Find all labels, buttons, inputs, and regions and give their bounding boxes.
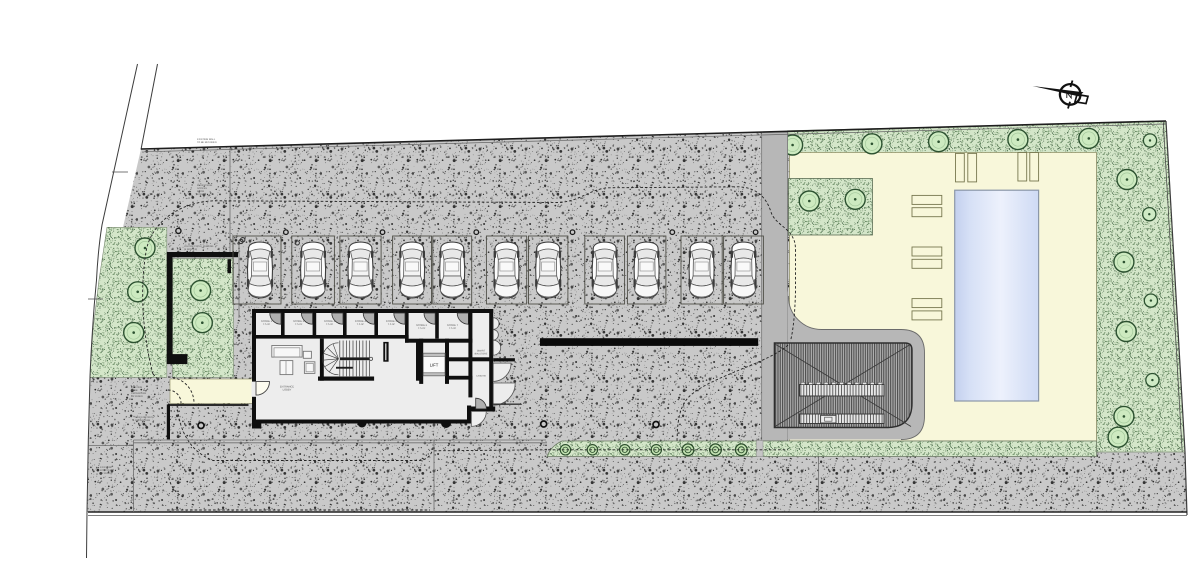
svg-text:TO BE RETAINED: TO BE RETAINED — [197, 141, 217, 144]
svg-text:RETAINED: RETAINED — [131, 395, 143, 398]
svg-text:7.5 m²: 7.5 m² — [263, 323, 270, 326]
svg-text:(6 SPACES): (6 SPACES) — [184, 248, 197, 251]
svg-text:7.5 m²: 7.5 m² — [388, 323, 395, 326]
svg-text:LOBBY: LOBBY — [283, 389, 292, 392]
svg-text:7.5 m²: 7.5 m² — [295, 323, 302, 326]
svg-text:CROSSOVER: CROSSOVER — [135, 419, 151, 422]
svg-text:7.5 m²: 7.5 m² — [449, 327, 456, 330]
svg-text:7.5 m²: 7.5 m² — [357, 323, 364, 326]
svg-text:7.5 m²: 7.5 m² — [326, 323, 333, 326]
svg-text:LIFT: LIFT — [430, 363, 439, 368]
svg-text:BIN STORE: BIN STORE — [475, 353, 488, 356]
svg-text:7.5 m²: 7.5 m² — [418, 327, 425, 330]
svg-text:STREET: STREET — [197, 193, 207, 196]
svg-text:1200x700: 1200x700 — [476, 375, 486, 378]
svg-text:RETAINED: RETAINED — [100, 472, 112, 475]
